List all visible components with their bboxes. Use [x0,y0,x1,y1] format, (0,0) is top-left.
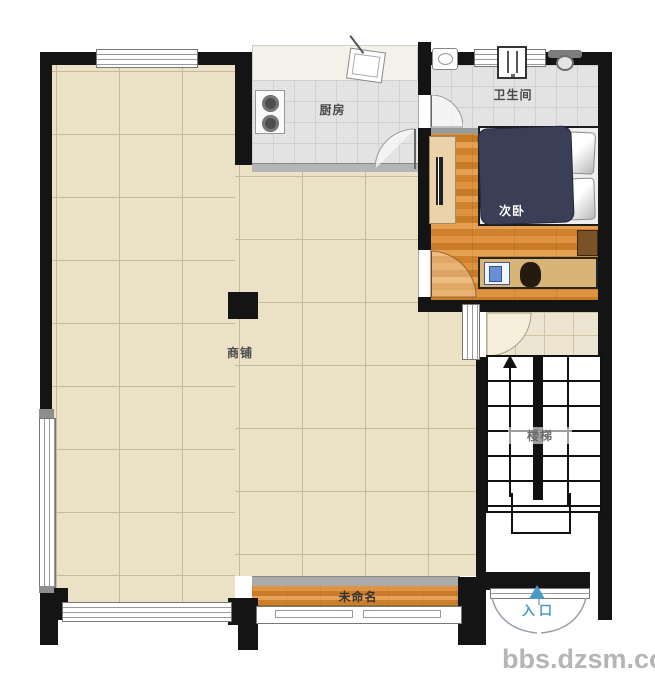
pier-shop-kitchen [235,52,252,165]
kitchen-door-arc [375,128,416,170]
wall-stairwell-left [476,357,486,577]
floor-plan: 商铺 厨房 卫生间 次卧 楼梯 未命名 入口 bbs.dzsm.com [0,0,655,679]
wall-left [40,52,52,418]
room-label-bathroom: 卫生间 [468,86,558,103]
bathroom-door-opening [418,95,431,128]
wardrobe-handle [436,157,443,205]
stove-icon [255,90,285,134]
bedroom-door-opening [418,250,431,297]
window-bottom-mid-pane2 [363,610,441,618]
heater-dot [511,74,515,77]
desk [478,257,598,289]
kitchen-counter-top [252,45,418,81]
door-shop-landing [462,304,480,360]
landing-door-arc [486,312,536,357]
bedroom-door-arc [430,250,477,298]
burner-icon [262,115,279,132]
heater-line [516,51,518,73]
chair [520,262,541,287]
shower-heater-icon [497,46,527,79]
watermark-text: bbs.dzsm.com [502,644,654,675]
basin-oval [438,53,453,65]
burner-icon [262,95,279,112]
heater-line [507,51,509,73]
window-left [39,418,56,588]
window-bottom-mid-pane [275,610,353,618]
room-label-shop: 商铺 [195,344,285,361]
wardrobe [429,136,456,224]
wall-inner-vertical-a [418,42,431,95]
pier-bottom-mid [228,598,258,625]
window-left-sill-bottom [39,586,54,593]
column-bottom-mid [238,625,258,650]
window-bottom-mid [256,606,462,624]
room-label-kitchen: 厨房 [290,101,375,118]
wall-below-bedroom [430,300,612,312]
bathroom-door-arc [430,95,463,128]
toilet-icon [548,48,582,72]
room-label-stairs: 楼梯 [508,427,572,444]
column-bottom-left [40,620,58,645]
window-bottom-left [62,602,232,622]
stairs-up-arrow-icon [503,355,517,368]
sink-basin [352,53,381,77]
room-shop-floor [52,60,235,602]
room-label-entrance: 入口 [509,600,569,619]
room-label-unnamed: 未命名 [313,588,403,605]
window-top-shop [96,49,198,68]
kitchen-sink-icon [346,48,386,84]
unnamed-gray-strip [252,576,460,586]
entrance-arrow-icon [529,585,545,599]
window-left-sill-top [39,409,54,418]
room-label-bedroom: 次卧 [482,202,542,219]
nightstand [577,230,598,256]
wall-right [598,52,612,620]
bath-sink-icon [432,48,458,70]
toilet-bowl [556,55,574,71]
computer-icon [484,262,510,285]
stairs-lower-flight-outline [511,493,571,534]
column-shop [228,292,258,319]
computer-screen [489,266,502,282]
